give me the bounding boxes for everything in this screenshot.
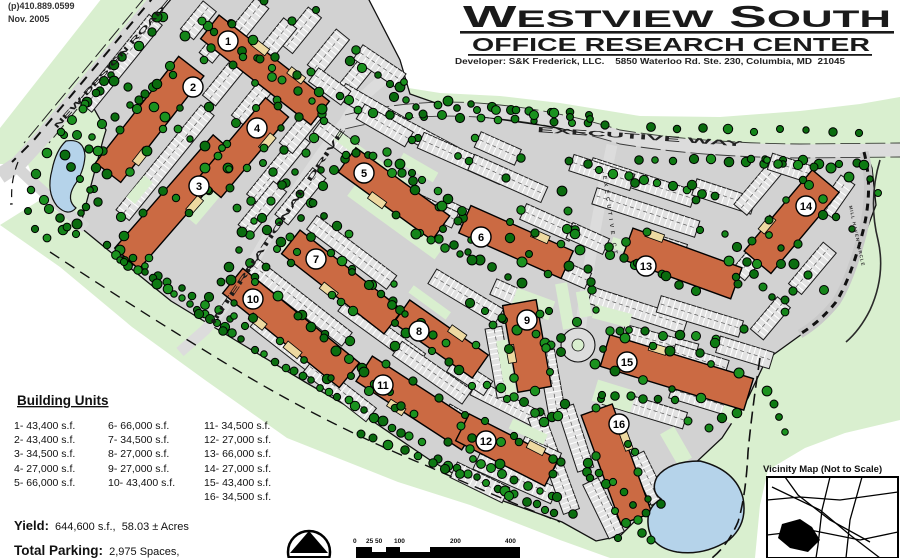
svg-text:16- 34,500 s.f.: 16- 34,500 s.f. [204, 491, 271, 503]
svg-text:OFFICE RESEARCH CENTER: OFFICE RESEARCH CENTER [472, 34, 870, 55]
svg-text:13- 66,000 s.f.: 13- 66,000 s.f. [204, 448, 271, 460]
svg-text:8: 8 [416, 326, 422, 338]
svg-text:25 50: 25 50 [366, 538, 383, 545]
svg-text:6- 66,000 s.f.: 6- 66,000 s.f. [108, 420, 169, 432]
svg-text:200: 200 [450, 538, 461, 545]
svg-text:5: 5 [361, 168, 367, 180]
svg-text:Nov. 2005: Nov. 2005 [8, 14, 49, 24]
svg-text:5- 66,000 s.f.: 5- 66,000 s.f. [14, 477, 75, 489]
svg-text:Yield: 644,600 s.f., 58.03 ±: Yield: 644,600 s.f., 58.03 ± Acres [14, 518, 189, 533]
svg-text:13: 13 [640, 261, 652, 273]
svg-text:WESTVIEW SOUTH: WESTVIEW SOUTH [463, 0, 891, 34]
svg-text:15- 43,400 s.f.: 15- 43,400 s.f. [204, 477, 271, 489]
svg-text:4- 27,000 s.f.: 4- 27,000 s.f. [14, 463, 75, 475]
svg-text:Vicinity Map (Not to Scale): Vicinity Map (Not to Scale) [763, 464, 882, 475]
svg-text:4: 4 [254, 123, 261, 135]
svg-text:10: 10 [247, 294, 259, 306]
svg-text:12: 12 [480, 436, 492, 448]
svg-text:12- 27,000 s.f.: 12- 27,000 s.f. [204, 434, 271, 446]
svg-text:1: 1 [225, 36, 231, 48]
svg-text:14: 14 [800, 201, 813, 213]
svg-text:400: 400 [505, 538, 516, 545]
svg-text:100: 100 [394, 538, 405, 545]
svg-text:Building Units: Building Units [17, 393, 109, 408]
svg-text:11: 11 [377, 380, 389, 392]
svg-text:9- 27,000 s.f.: 9- 27,000 s.f. [108, 463, 169, 475]
svg-text:6: 6 [478, 232, 484, 244]
svg-text:0: 0 [353, 538, 357, 545]
svg-text:15: 15 [621, 357, 633, 369]
svg-text:3- 34,500 s.f.: 3- 34,500 s.f. [14, 448, 75, 460]
svg-text:9: 9 [524, 315, 530, 327]
svg-text:Developer: S&K Frederick, LLC.: Developer: S&K Frederick, LLC. 5850 Wate… [455, 57, 846, 66]
svg-text:2: 2 [190, 82, 196, 94]
svg-text:7- 34,500 s.f.: 7- 34,500 s.f. [108, 434, 169, 446]
svg-text:10- 43,400 s.f.: 10- 43,400 s.f. [108, 477, 175, 489]
svg-text:8- 27,000 s.f.: 8- 27,000 s.f. [108, 448, 169, 460]
svg-text:11- 34,500 s.f.: 11- 34,500 s.f. [204, 420, 270, 432]
svg-text:1- 43,400 s.f.: 1- 43,400 s.f. [14, 420, 75, 432]
svg-text:(p)410.889.0599: (p)410.889.0599 [8, 1, 75, 11]
svg-text:2- 43,400 s.f.: 2- 43,400 s.f. [14, 434, 75, 446]
svg-text:16: 16 [613, 419, 625, 431]
svg-text:7: 7 [313, 254, 319, 266]
svg-text:Total Parking: 2,975 Spaces,: Total Parking: 2,975 Spaces, [14, 543, 179, 558]
svg-text:3: 3 [196, 181, 202, 193]
svg-text:14- 27,000 s.f.: 14- 27,000 s.f. [204, 463, 271, 475]
